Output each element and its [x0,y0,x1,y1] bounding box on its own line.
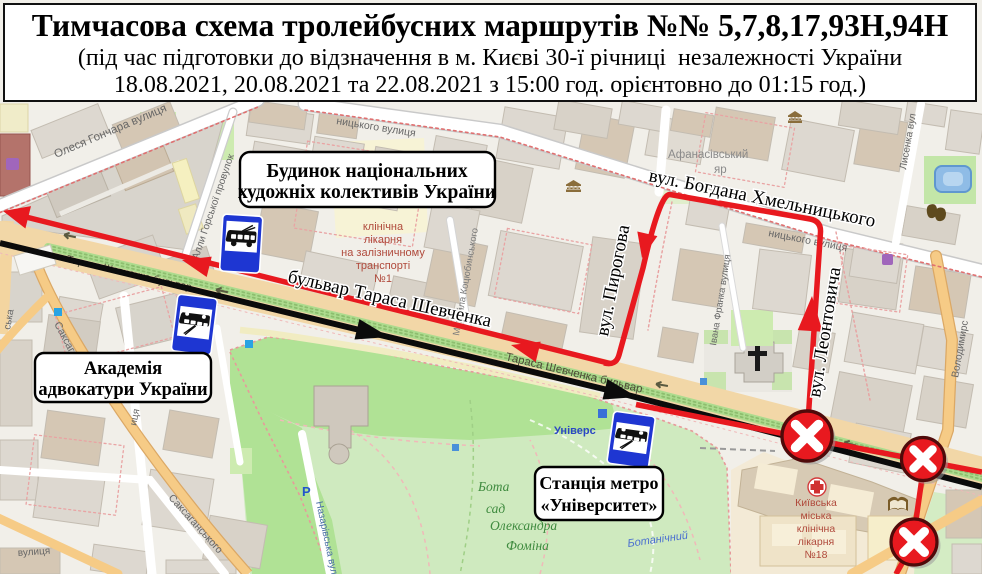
svg-text:сад: сад [486,501,505,516]
svg-text:«Університет»: «Університет» [541,495,658,515]
svg-text:яр: яр [714,164,727,176]
svg-text:клінічна: клінічна [797,523,836,535]
svg-text:транспорті: транспорті [356,260,410,272]
svg-text:Будинок національних: Будинок національних [266,161,467,182]
svg-text:P: P [302,484,311,499]
svg-text:№1: №1 [374,273,392,285]
svg-text:Фоміна: Фоміна [506,538,549,553]
svg-text:Київська: Київська [795,497,837,509]
svg-text:Бота: Бота [477,479,510,494]
svg-text:на залізничному: на залізничному [341,247,425,259]
svg-text:клінічна: клінічна [363,221,404,233]
svg-text:Станція метро: Станція метро [539,473,658,493]
svg-text:вулиця: вулиця [17,546,50,559]
svg-text:художніх колективів України: художніх колективів України [238,182,496,203]
svg-text:№18: №18 [805,549,828,561]
svg-text:міська: міська [801,510,832,522]
svg-text:Універс: Універс [554,425,596,437]
svg-text:Афанасівський: Афанасівський [668,149,748,161]
svg-text:лікарня: лікарня [798,536,834,548]
svg-text:лікарня: лікарня [364,234,402,246]
svg-text:адвокатури України: адвокатури України [38,380,208,400]
svg-text:Академія: Академія [84,359,162,379]
